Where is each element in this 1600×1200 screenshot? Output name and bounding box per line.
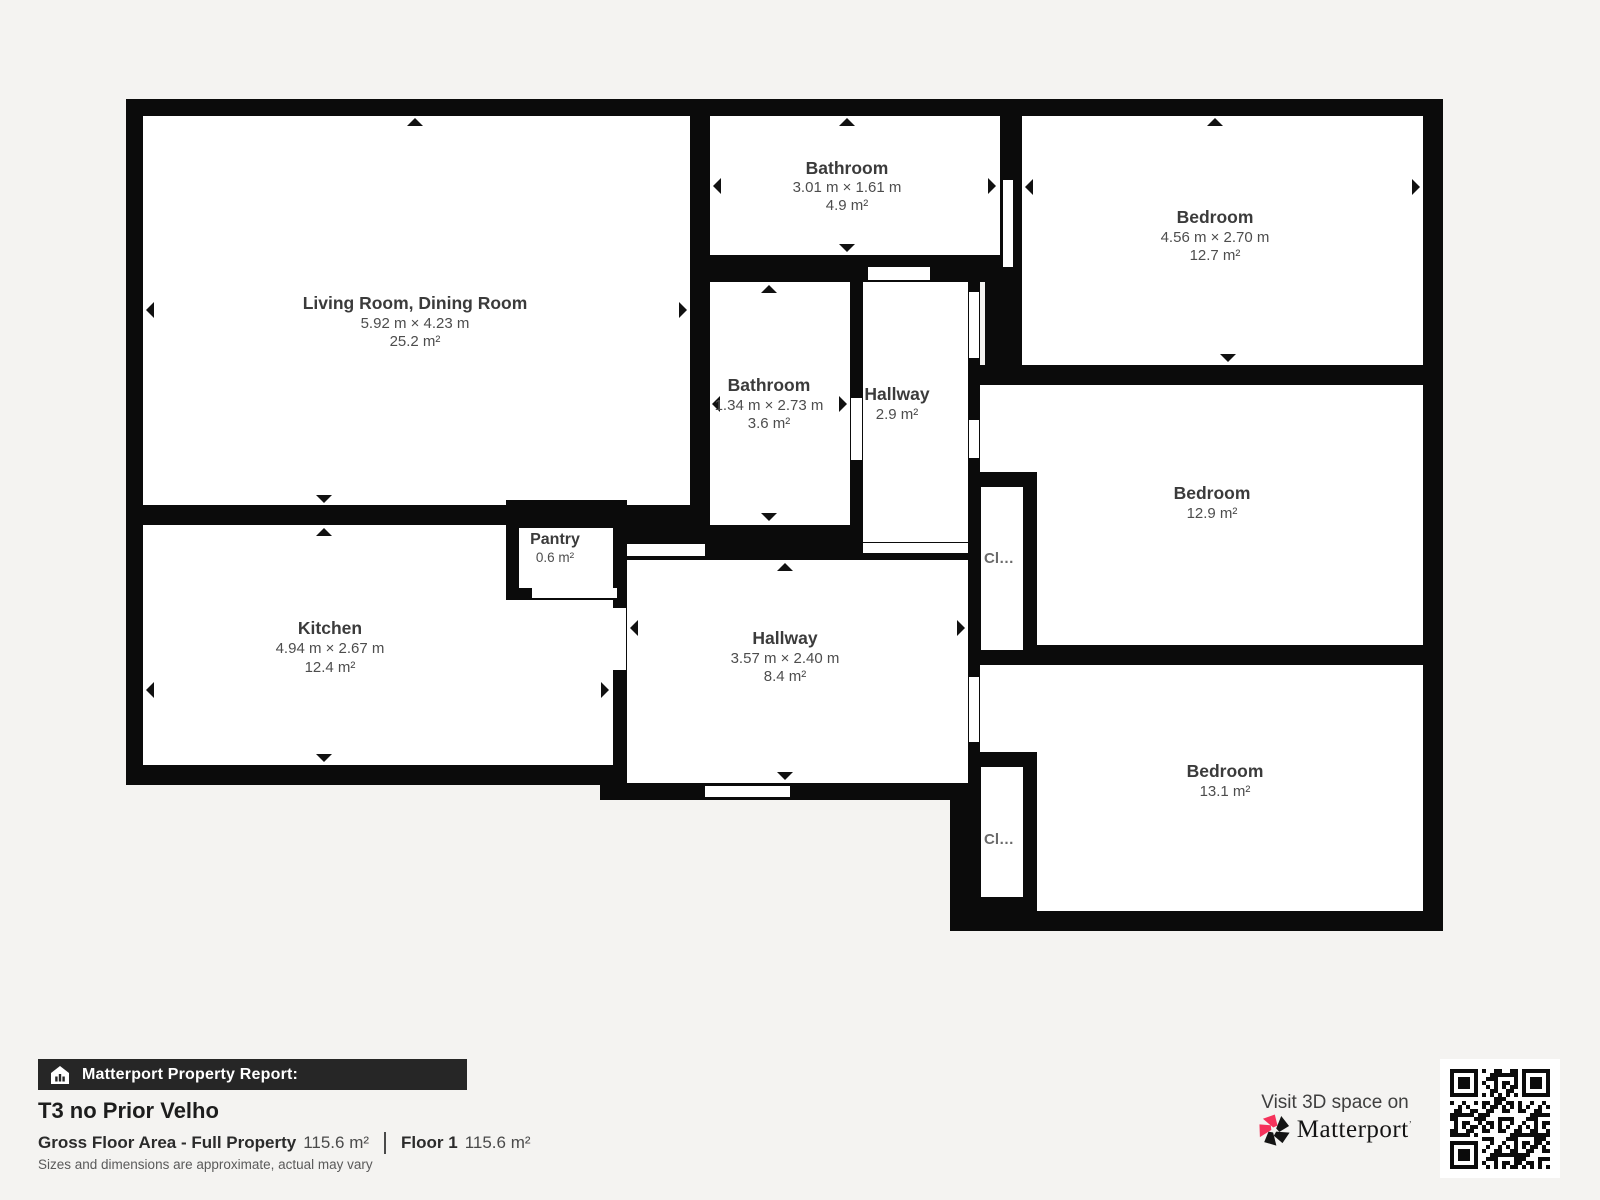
bedroom-top-dims: 4.56 m × 2.70 m xyxy=(1161,229,1270,246)
report-header-bar: Matterport Property Report: xyxy=(38,1059,467,1090)
report-label: Matterport Property Report: xyxy=(82,1066,298,1084)
pantry-area: 0.6 m² xyxy=(536,550,575,565)
hallway-main-area: 8.4 m² xyxy=(764,668,807,685)
pantry-name: Pantry xyxy=(530,531,580,548)
visit-3d-text: Visit 3D space on xyxy=(1225,1092,1445,1114)
property-title: T3 no Prior Velho xyxy=(38,1098,219,1124)
matterport-pinwheel-icon xyxy=(1258,1114,1290,1146)
hallway-small-name: Hallway xyxy=(864,384,929,404)
kitchen-name: Kitchen xyxy=(298,618,362,638)
closet-mid-label: Cl… xyxy=(984,550,1014,567)
vertical-divider xyxy=(384,1132,386,1154)
hallway-main-dims: 3.57 m × 2.40 m xyxy=(731,650,840,667)
matterport-logo: Matterport’ xyxy=(1225,1112,1445,1148)
bathroom-mid-name: Bathroom xyxy=(728,375,811,395)
gross-floor-area-label: Gross Floor Area - Full Property xyxy=(38,1133,296,1153)
floor-label: Floor 1 xyxy=(401,1133,458,1153)
kitchen-dims: 4.94 m × 2.67 m xyxy=(276,640,385,657)
bedroom-mid-area: 12.9 m² xyxy=(1187,505,1238,522)
room-closet-mid xyxy=(981,487,1023,650)
bedroom-top-name: Bedroom xyxy=(1177,207,1254,227)
closet-bottom-label: Cl… xyxy=(984,831,1014,848)
bedroom-mid-name: Bedroom xyxy=(1174,483,1251,503)
bedroom-top-area: 12.7 m² xyxy=(1190,247,1241,264)
hallway-main-name: Hallway xyxy=(752,628,817,648)
floor-plan: Living Room, Dining Room 5.92 m × 4.23 m… xyxy=(0,0,1600,1200)
disclaimer-text: Sizes and dimensions are approximate, ac… xyxy=(38,1157,373,1172)
area-summary-row: Gross Floor Area - Full Property 115.6 m… xyxy=(38,1132,531,1154)
house-chart-icon xyxy=(50,1065,70,1085)
bathroom-mid-area: 3.6 m² xyxy=(748,415,791,432)
living-name: Living Room, Dining Room xyxy=(303,293,528,313)
gross-floor-area-value: 115.6 m² xyxy=(303,1133,369,1153)
floor-value: 115.6 m² xyxy=(465,1133,531,1153)
bathroom-top-name: Bathroom xyxy=(806,158,889,178)
bedroom-bottom-area: 13.1 m² xyxy=(1200,783,1251,800)
qr-code-card xyxy=(1440,1059,1560,1178)
kitchen-area: 12.4 m² xyxy=(305,659,356,676)
bathroom-mid-dims: 1.34 m × 2.73 m xyxy=(715,397,824,414)
matterport-wordmark: Matterport’ xyxy=(1297,1116,1412,1144)
qr-code xyxy=(1450,1069,1550,1169)
living-dims: 5.92 m × 4.23 m xyxy=(361,315,470,332)
bathroom-top-dims: 3.01 m × 1.61 m xyxy=(793,179,902,196)
trademark-mark: ’ xyxy=(1409,1120,1413,1130)
bedroom-bottom-name: Bedroom xyxy=(1187,761,1264,781)
bathroom-top-area: 4.9 m² xyxy=(826,197,869,214)
living-area: 25.2 m² xyxy=(390,333,441,350)
hallway-small-area: 2.9 m² xyxy=(876,406,919,423)
